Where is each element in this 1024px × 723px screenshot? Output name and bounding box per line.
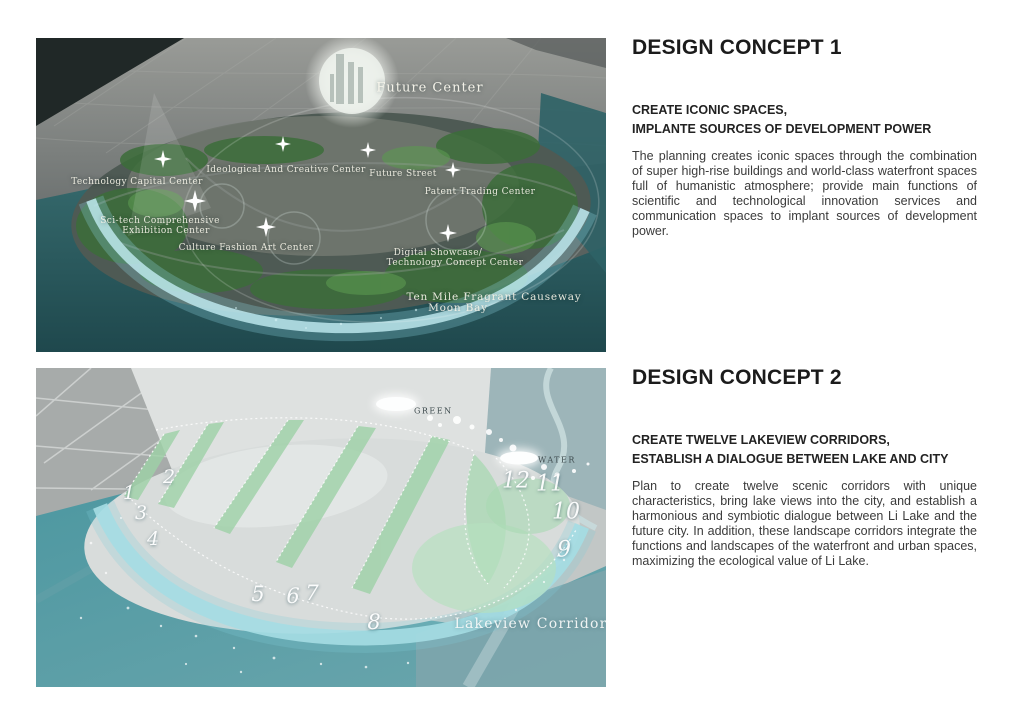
concept-2-subtitle-line2: ESTABLISH A DIALOGUE BETWEEN LAKE AND CI…	[632, 450, 977, 469]
corridor-number-7: 7	[305, 581, 318, 605]
water-legend-ellipse	[500, 452, 538, 465]
corridor-number-2: 2	[163, 466, 175, 488]
map1-label-future-center: Future Center	[376, 81, 483, 96]
map1-label-scitech-line1: Sci-tech Comprehensive	[100, 216, 220, 226]
concept-1-subtitle-line2: IMPLANTE SOURCES OF DEVELOPMENT POWER	[632, 120, 977, 139]
map1-label-tech-concept: Technology Concept Center	[387, 258, 524, 268]
concept-2-text: DESIGN CONCEPT 2 CREATE TWELVE LAKEVIEW …	[632, 366, 977, 569]
map1-label-future-street: Future Street	[369, 169, 437, 179]
map1-label-patent-trading: Patent Trading Center	[425, 187, 536, 197]
concept-1-subtitle: CREATE ICONIC SPACES, IMPLANTE SOURCES O…	[632, 101, 977, 139]
map1-label-culture-fashion: Culture Fashion Art Center	[179, 243, 314, 253]
concept-1-subtitle-line1: CREATE ICONIC SPACES,	[632, 101, 977, 120]
corridor-number-11: 11	[536, 472, 564, 497]
corridor-number-4: 4	[147, 528, 159, 550]
corridor-number-8: 8	[367, 610, 380, 634]
map1-label-scitech-line2: Exhibition Center	[122, 226, 210, 236]
map1-label-technology-capital: Technology Capital Center	[71, 177, 203, 187]
water-legend-label: WATER	[538, 456, 576, 465]
concept-2-title: DESIGN CONCEPT 2	[632, 366, 977, 390]
concept-2-subtitle-line1: CREATE TWELVE LAKEVIEW CORRIDORS,	[632, 431, 977, 450]
concept-1-text: DESIGN CONCEPT 1 CREATE ICONIC SPACES, I…	[632, 36, 977, 239]
map1-label-digital-showcase: Digital Showcase/	[394, 248, 483, 258]
corridor-number-1: 1	[123, 482, 135, 504]
corridor-number-10: 10	[552, 500, 580, 525]
concept-2-body: Plan to create twelve scenic corridors w…	[632, 479, 977, 569]
corridor-number-5: 5	[251, 582, 264, 606]
concept-1-body: The planning creates iconic spaces throu…	[632, 149, 977, 239]
concept-2-subtitle: CREATE TWELVE LAKEVIEW CORRIDORS, ESTABL…	[632, 431, 977, 469]
green-legend-ellipse	[376, 397, 416, 411]
map1-label-ideological: Ideological And Creative Center	[206, 165, 365, 175]
green-legend-label: GREEN	[414, 407, 453, 416]
concept-2-map-image: GREEN WATER 1 2 3 4 5 6 7 8 9 10 11 12 L…	[36, 368, 606, 687]
corridor-number-3: 3	[135, 502, 147, 524]
map1-label-moon-bay: Moon Bay	[428, 302, 488, 314]
design-concept-page: Future Center Technology Capital Center …	[0, 0, 1024, 723]
map2-illustration	[36, 368, 606, 687]
corridor-number-6: 6	[286, 584, 299, 608]
lakeview-corridor-caption: Lakeview Corridor	[454, 616, 606, 632]
concept-1-map-image: Future Center Technology Capital Center …	[36, 38, 606, 352]
corridor-number-9: 9	[557, 538, 571, 563]
concept-1-title: DESIGN CONCEPT 1	[632, 36, 977, 60]
corridor-number-12: 12	[502, 469, 530, 494]
